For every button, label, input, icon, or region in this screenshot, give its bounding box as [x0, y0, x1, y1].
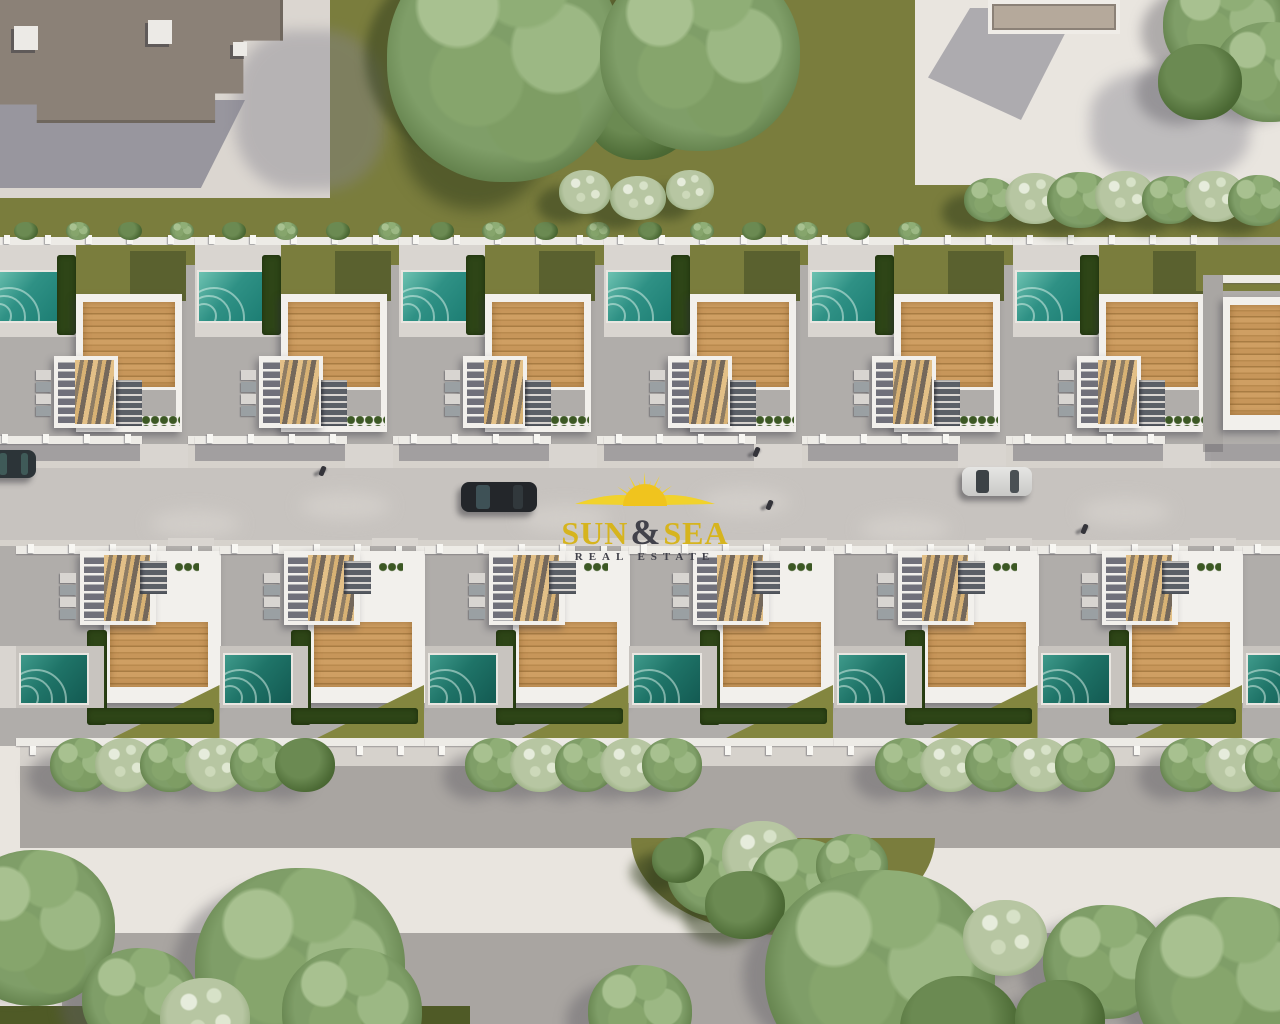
pergola — [54, 356, 118, 428]
tree — [1055, 738, 1115, 792]
rear-hedge — [87, 708, 214, 724]
wall-post — [807, 746, 813, 755]
utility-box — [469, 597, 485, 607]
swimming-pool — [606, 270, 676, 323]
house-hedge — [1197, 563, 1221, 572]
utility-box — [1059, 382, 1074, 392]
boundary-wall-front — [808, 436, 960, 444]
wall-post — [289, 434, 295, 443]
utility-box — [60, 609, 76, 619]
wall-post — [698, 434, 704, 443]
pool-ripple — [428, 669, 476, 705]
entrance-stairs — [1139, 380, 1165, 426]
wall-post — [454, 235, 460, 244]
pool-terrace — [0, 646, 16, 708]
wall-post — [766, 746, 772, 755]
rear-hedge — [291, 708, 418, 724]
wall-post — [43, 434, 49, 443]
villa-plot — [1243, 546, 1280, 746]
roof-terrace-deck — [1230, 305, 1280, 415]
wall-post — [945, 235, 951, 244]
pergola-slats — [263, 360, 280, 424]
swimming-pool — [837, 653, 907, 705]
roof-terrace-deck — [1132, 622, 1230, 687]
hedge-bush — [326, 222, 350, 240]
pergola-slats — [493, 555, 513, 621]
watermark-logo: SUN&SEA REAL ESTATE — [540, 450, 750, 570]
entrance-stairs — [753, 561, 780, 594]
utility-box — [650, 370, 665, 380]
wall-post — [1191, 235, 1197, 244]
pool-ripple — [401, 287, 449, 323]
pergola-slats — [672, 360, 689, 424]
wall-shadow — [1205, 444, 1280, 461]
hedge-bush — [690, 222, 714, 240]
entrance-stairs — [958, 561, 985, 594]
entrance-stairs — [321, 380, 347, 426]
utility-box — [1059, 394, 1074, 404]
utility-box — [264, 585, 280, 595]
tree — [275, 738, 335, 792]
entrance-stairs — [730, 380, 756, 426]
pergola-deck — [280, 360, 319, 424]
driveway — [168, 538, 214, 546]
pool-ripple — [606, 287, 654, 323]
wall-post — [45, 235, 51, 244]
utility-box — [1059, 406, 1074, 416]
pool-ripple — [810, 287, 858, 323]
utility-box — [445, 394, 460, 404]
hedge-bush — [222, 222, 246, 240]
wall-post — [437, 544, 443, 553]
entrance-stairs — [1162, 561, 1189, 594]
utility-box — [854, 406, 869, 416]
pool-ripple — [1246, 669, 1280, 705]
pool-ripple — [837, 669, 885, 705]
car-windshield — [976, 470, 989, 493]
road-patch — [300, 492, 390, 520]
utility-box — [878, 597, 894, 607]
wall-post — [1255, 544, 1261, 553]
swimming-pool — [810, 270, 880, 323]
side-hedge — [1080, 255, 1099, 335]
logo-subtitle: REAL ESTATE — [540, 551, 750, 563]
utility-box — [854, 394, 869, 404]
utility-box — [1082, 573, 1098, 583]
entrance-stairs — [116, 380, 142, 426]
wall-post — [534, 434, 540, 443]
utility-box — [60, 597, 76, 607]
villa-plot — [399, 237, 604, 452]
corner-path — [1203, 275, 1223, 452]
pergola-deck — [893, 360, 932, 424]
villa-plot — [808, 237, 1013, 452]
side-hedge — [262, 255, 281, 335]
driveway — [986, 538, 1032, 546]
wall-post — [1025, 434, 1031, 443]
utility-box — [673, 609, 689, 619]
corner-wall — [1223, 275, 1280, 283]
car-rear-window — [1010, 470, 1020, 493]
car-dark — [461, 482, 537, 512]
utility-box — [241, 370, 256, 380]
rear-hedge — [700, 708, 827, 724]
pergola-slats — [58, 360, 75, 424]
utility-box — [878, 573, 894, 583]
wall-post — [69, 544, 75, 553]
car-white — [962, 467, 1032, 496]
swimming-pool — [197, 270, 267, 323]
wall-post — [330, 434, 336, 443]
car-windshield — [476, 485, 490, 509]
driveway — [1190, 538, 1236, 546]
wall-post — [861, 434, 867, 443]
pergola-slats — [288, 555, 308, 621]
utility-box — [650, 382, 665, 392]
utility-box — [673, 597, 689, 607]
utility-box — [673, 585, 689, 595]
logo-ampersand: & — [628, 512, 663, 552]
wall-post — [618, 235, 624, 244]
villa-plot — [195, 237, 400, 452]
hedge-bush — [742, 222, 766, 240]
villa-plot — [629, 546, 834, 746]
pergola-slats — [84, 555, 104, 621]
car-rear-window — [513, 485, 524, 509]
wall-post — [577, 235, 583, 244]
utility-box — [60, 573, 76, 583]
corner-house — [1223, 297, 1280, 430]
aerial-render-scene: SUN&SEA REAL ESTATE — [0, 0, 1280, 1024]
wall-post — [84, 434, 90, 443]
rear-hedge — [496, 708, 623, 724]
tree — [652, 837, 704, 883]
driveway — [754, 444, 802, 468]
wall-post — [1109, 235, 1115, 244]
swimming-pool — [1041, 653, 1111, 705]
inner-patio — [343, 390, 381, 416]
hedge-bush — [794, 222, 818, 240]
boundary-wall-front — [1243, 546, 1280, 554]
lower-road-left-notch — [0, 746, 20, 850]
utility-box — [854, 370, 869, 380]
pergola-slats — [876, 360, 893, 424]
wall-post — [478, 544, 484, 553]
roof-terrace-deck — [110, 622, 208, 687]
wall-post — [30, 746, 36, 755]
hedge-bush — [482, 222, 506, 240]
wall-post — [411, 434, 417, 443]
utility-box — [36, 382, 51, 392]
house-hedge — [960, 416, 998, 426]
wall-post — [439, 746, 445, 755]
utility-box — [60, 585, 76, 595]
house-hedge — [347, 416, 385, 426]
wall-post — [125, 434, 131, 443]
boundary-wall-front — [1013, 436, 1165, 444]
hedge-bush — [118, 222, 142, 240]
wall-post — [986, 235, 992, 244]
house-hedge — [175, 563, 199, 572]
roof-vent — [233, 42, 247, 56]
house-hedge — [1165, 416, 1203, 426]
tree — [963, 900, 1047, 976]
villa-plot — [604, 237, 809, 452]
wall-post — [1050, 544, 1056, 553]
house-hedge — [993, 563, 1017, 572]
utility-box — [445, 382, 460, 392]
hedge-bush — [14, 222, 38, 240]
pergola — [668, 356, 732, 428]
roof-terrace-deck — [519, 622, 617, 687]
hedge-bush — [846, 222, 870, 240]
wall-post — [1027, 235, 1033, 244]
utility-box — [854, 382, 869, 392]
wall-post — [616, 434, 622, 443]
utility-box — [878, 609, 894, 619]
swimming-pool — [428, 653, 498, 705]
tree — [705, 871, 785, 939]
pool-ripple — [1041, 669, 1089, 705]
wall-post — [1150, 235, 1156, 244]
villa-plot — [220, 546, 425, 746]
tree — [1228, 175, 1280, 226]
side-hedge — [875, 255, 894, 335]
wall-post — [1068, 235, 1074, 244]
driveway — [345, 444, 393, 468]
pergola-deck — [75, 360, 114, 424]
swimming-pool — [223, 653, 293, 705]
boundary-wall-rear — [1013, 237, 1218, 245]
wall-post — [493, 434, 499, 443]
tree — [559, 170, 611, 214]
neighbour-roof — [988, 0, 1120, 34]
villa-plot — [16, 546, 221, 746]
villa-plot — [834, 546, 1039, 746]
wall-post — [452, 434, 458, 443]
tree-shadow-on-pavement — [235, 30, 385, 190]
wall-post — [1091, 544, 1097, 553]
wall-post — [357, 746, 363, 755]
hedge-bush — [430, 222, 454, 240]
utility-box — [445, 406, 460, 416]
boundary-wall-front — [399, 436, 551, 444]
wall-post — [4, 235, 10, 244]
entrance-stairs — [344, 561, 371, 594]
boundary-wall-front — [0, 436, 142, 444]
inner-patio — [547, 390, 585, 416]
roof-terrace-deck — [314, 622, 412, 687]
side-hedge — [466, 255, 485, 335]
wall-post — [2, 434, 8, 443]
utility-box — [469, 609, 485, 619]
utility-box — [241, 382, 256, 392]
roof-vent — [14, 26, 38, 50]
wall-post — [820, 434, 826, 443]
utility-box — [241, 406, 256, 416]
wall-post — [398, 746, 404, 755]
utility-box — [264, 609, 280, 619]
entrance-stairs — [525, 380, 551, 426]
swimming-pool — [632, 653, 702, 705]
house-hedge — [379, 563, 403, 572]
wall-post — [782, 235, 788, 244]
tree — [1158, 44, 1242, 120]
house-hedge — [788, 563, 812, 572]
hedge-bush — [274, 222, 298, 240]
car-windshield — [0, 453, 7, 475]
utility-box — [1082, 597, 1098, 607]
pergola — [872, 356, 936, 428]
pool-ripple — [197, 287, 245, 323]
utility-box — [878, 585, 894, 595]
entrance-stairs — [934, 380, 960, 426]
wall-post — [373, 235, 379, 244]
wall-post — [1134, 746, 1140, 755]
tree — [666, 170, 714, 210]
driveway — [372, 538, 418, 546]
utility-box — [36, 406, 51, 416]
road-patch — [150, 510, 240, 538]
swimming-pool — [1246, 653, 1280, 705]
hedge-bush — [378, 222, 402, 240]
villa-plot — [1038, 546, 1243, 746]
villa-plot — [1013, 237, 1218, 452]
wall-post — [1107, 434, 1113, 443]
swimming-pool — [0, 270, 62, 323]
wall-post — [943, 434, 949, 443]
car-partial — [0, 450, 36, 478]
boundary-wall-rear — [195, 237, 400, 245]
pool-ripple — [0, 287, 40, 323]
inner-patio — [138, 390, 176, 416]
wall-post — [725, 746, 731, 755]
wall-post — [902, 434, 908, 443]
boundary-wall-front — [604, 436, 756, 444]
pool-ripple — [632, 669, 680, 705]
swimming-pool — [1015, 270, 1085, 323]
hedge-bush — [66, 222, 90, 240]
roof-terrace-deck — [723, 622, 821, 687]
house-hedge — [551, 416, 589, 426]
utility-box — [264, 573, 280, 583]
wall-shadow — [1013, 444, 1163, 461]
rear-hedge — [1109, 708, 1236, 724]
house-hedge — [142, 416, 180, 426]
wall-post — [250, 235, 256, 244]
entrance-stairs — [140, 561, 167, 594]
wall-post — [209, 235, 215, 244]
wall-post — [887, 544, 893, 553]
wall-post — [848, 746, 854, 755]
boundary-wall-front — [195, 436, 347, 444]
swimming-pool — [19, 653, 89, 705]
wall-post — [207, 434, 213, 443]
pergola-deck — [689, 360, 728, 424]
villa-plot — [0, 237, 195, 452]
wall-post — [739, 434, 745, 443]
wall-post — [232, 544, 238, 553]
utility-box — [469, 585, 485, 595]
pool-ripple — [1015, 287, 1063, 323]
driveway — [781, 538, 827, 546]
side-hedge — [57, 255, 76, 335]
roof-vent — [148, 20, 172, 44]
pergola — [463, 356, 527, 428]
wall-post — [657, 434, 663, 443]
pergola-deck — [1098, 360, 1137, 424]
utility-box — [1059, 370, 1074, 380]
utility-box — [673, 573, 689, 583]
hedge-bush — [898, 222, 922, 240]
utility-box — [1082, 585, 1098, 595]
utility-box — [469, 573, 485, 583]
wall-post — [822, 235, 828, 244]
side-hedge — [671, 255, 690, 335]
wall-post — [413, 235, 419, 244]
utility-box — [241, 394, 256, 404]
wall-shadow — [808, 444, 958, 461]
pergola-deck — [484, 360, 523, 424]
hedge-bush — [534, 222, 558, 240]
utility-box — [445, 370, 460, 380]
utility-box — [36, 370, 51, 380]
pergola-slats — [1081, 360, 1098, 424]
inner-patio — [752, 390, 790, 416]
wall-shadow — [399, 444, 549, 461]
wall-post — [248, 434, 254, 443]
pergola-slats — [902, 555, 922, 621]
pergola-slats — [1106, 555, 1126, 621]
pergola-slats — [467, 360, 484, 424]
rear-hedge — [905, 708, 1032, 724]
hedge-bush — [638, 222, 662, 240]
roof-terrace-deck — [928, 622, 1026, 687]
car-rear-window — [21, 453, 27, 475]
driveway — [140, 444, 188, 468]
wall-post — [1066, 434, 1072, 443]
logo-title: SUN&SEA — [540, 517, 750, 548]
inner-patio — [956, 390, 994, 416]
pergola — [1077, 356, 1141, 428]
wall-shadow — [195, 444, 345, 461]
utility-box — [1082, 609, 1098, 619]
tree — [642, 738, 702, 792]
house-hedge — [756, 416, 794, 426]
utility-box — [264, 597, 280, 607]
road-patch — [1080, 498, 1170, 526]
wall-post — [273, 544, 279, 553]
utility-box — [650, 406, 665, 416]
villa-plot — [425, 546, 630, 746]
inner-patio — [1161, 390, 1199, 416]
utility-box — [36, 394, 51, 404]
sun-icon — [570, 450, 720, 512]
driveway — [958, 444, 1006, 468]
utility-box — [650, 394, 665, 404]
swimming-pool — [401, 270, 471, 323]
road-patch — [860, 515, 950, 543]
pool-ripple — [19, 669, 67, 705]
wall-post — [1148, 434, 1154, 443]
wall-post — [28, 544, 34, 553]
hedge-bush — [170, 222, 194, 240]
pool-ripple — [223, 669, 271, 705]
tree — [610, 176, 666, 220]
pergola — [259, 356, 323, 428]
wall-post — [846, 544, 852, 553]
